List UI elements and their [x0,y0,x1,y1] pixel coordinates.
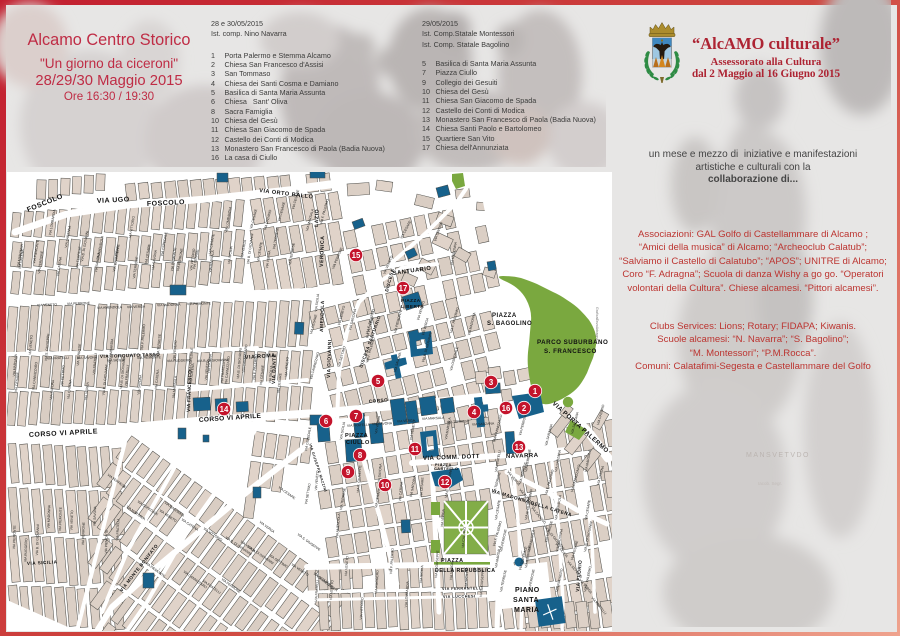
svg-text:5: 5 [376,377,381,386]
svg-text:VIA FERRANTELLI: VIA FERRANTELLI [442,586,483,591]
svg-text:PIAZZA: PIAZZA [492,313,517,319]
svg-text:VIA MADONNA: VIA MADONNA [157,303,181,308]
svg-text:NAVARRA: NAVARRA [506,453,539,460]
svg-text:VIA VENETO: VIA VENETO [37,303,58,308]
svg-text:VIA DANTE: VIA DANTE [271,353,278,384]
svg-text:DELLA REPUBBLICA: DELLA REPUBBLICA [435,568,496,574]
svg-text:VIA SICILIA: VIA SICILIA [107,358,126,363]
svg-text:11: 11 [411,445,420,454]
svg-text:16: 16 [502,404,511,413]
svg-text:8: 8 [358,451,363,460]
svg-text:17: 17 [399,284,408,293]
svg-text:2: 2 [522,404,527,413]
svg-text:10: 10 [381,481,390,490]
svg-text:9: 9 [346,468,351,477]
svg-text:VIA PIEMONTE: VIA PIEMONTE [12,524,17,549]
svg-text:S. FRANCESCO: S. FRANCESCO [544,348,597,355]
svg-text:VIA PIEMONTE: VIA PIEMONTE [104,529,109,554]
svg-text:VIA MADONNA: VIA MADONNA [47,504,52,528]
svg-text:VIA VERGA: VIA VERGA [127,305,146,310]
svg-text:SANTA: SANTA [513,597,539,604]
svg-text:VIA FRATELLI: VIA FRATELLI [116,519,121,541]
svg-text:VIA RUGGERO: VIA RUGGERO [24,538,29,562]
svg-text:MARIA: MARIA [514,607,539,614]
svg-text:PIANO: PIANO [515,587,540,594]
svg-text:VIA VENETO: VIA VENETO [70,510,75,531]
svg-text:S. BAGOLINO: S. BAGOLINO [487,321,532,327]
svg-text:Iacob. Segr.: Iacob. Segr. [758,481,782,486]
svg-text:VIA SAVONA: VIA SAVONA [77,355,98,360]
svg-text:VERONICA: VERONICA [319,235,326,267]
svg-text:VIA PERRONE: VIA PERRONE [81,521,86,545]
svg-text:VIA PERRONE: VIA PERRONE [67,301,91,306]
svg-text:14: 14 [220,405,229,414]
svg-text:LIBERTA: LIBERTA [401,304,424,309]
svg-text:GraficaEnzoAdragna: GraficaEnzoAdragna [595,307,599,340]
svg-text:AMENDOLA: AMENDOLA [319,300,326,332]
svg-text:PIAZZA: PIAZZA [401,298,421,303]
svg-text:VIA SAVONA: VIA SAVONA [93,505,98,526]
svg-text:VIA PIEMONTE: VIA PIEMONTE [58,506,63,531]
svg-text:1: 1 [533,387,538,396]
svg-text:VIA PIEMONTE: VIA PIEMONTE [187,301,212,306]
svg-text:13: 13 [515,443,524,452]
svg-text:7: 7 [354,412,358,421]
svg-text:VIA LUCCHESI: VIA LUCCHESI [443,594,476,599]
svg-text:12: 12 [441,478,450,487]
svg-text:4: 4 [472,408,477,417]
svg-text:LAZIO: LAZIO [314,209,321,227]
svg-text:6: 6 [324,417,329,426]
svg-text:VIA RUGGERO: VIA RUGGERO [167,358,191,363]
svg-text:15: 15 [352,251,361,260]
svg-text:PIAZZA: PIAZZA [345,433,368,439]
svg-text:3: 3 [489,378,494,387]
svg-text:VIA FRATELLI: VIA FRATELLI [47,356,69,361]
svg-text:PIAZZA: PIAZZA [441,558,463,564]
svg-text:CASTELLO: CASTELLO [434,467,458,471]
svg-text:CIULLO: CIULLO [346,440,370,446]
svg-text:MANSVETVDO: MANSVETVDO [746,452,810,459]
